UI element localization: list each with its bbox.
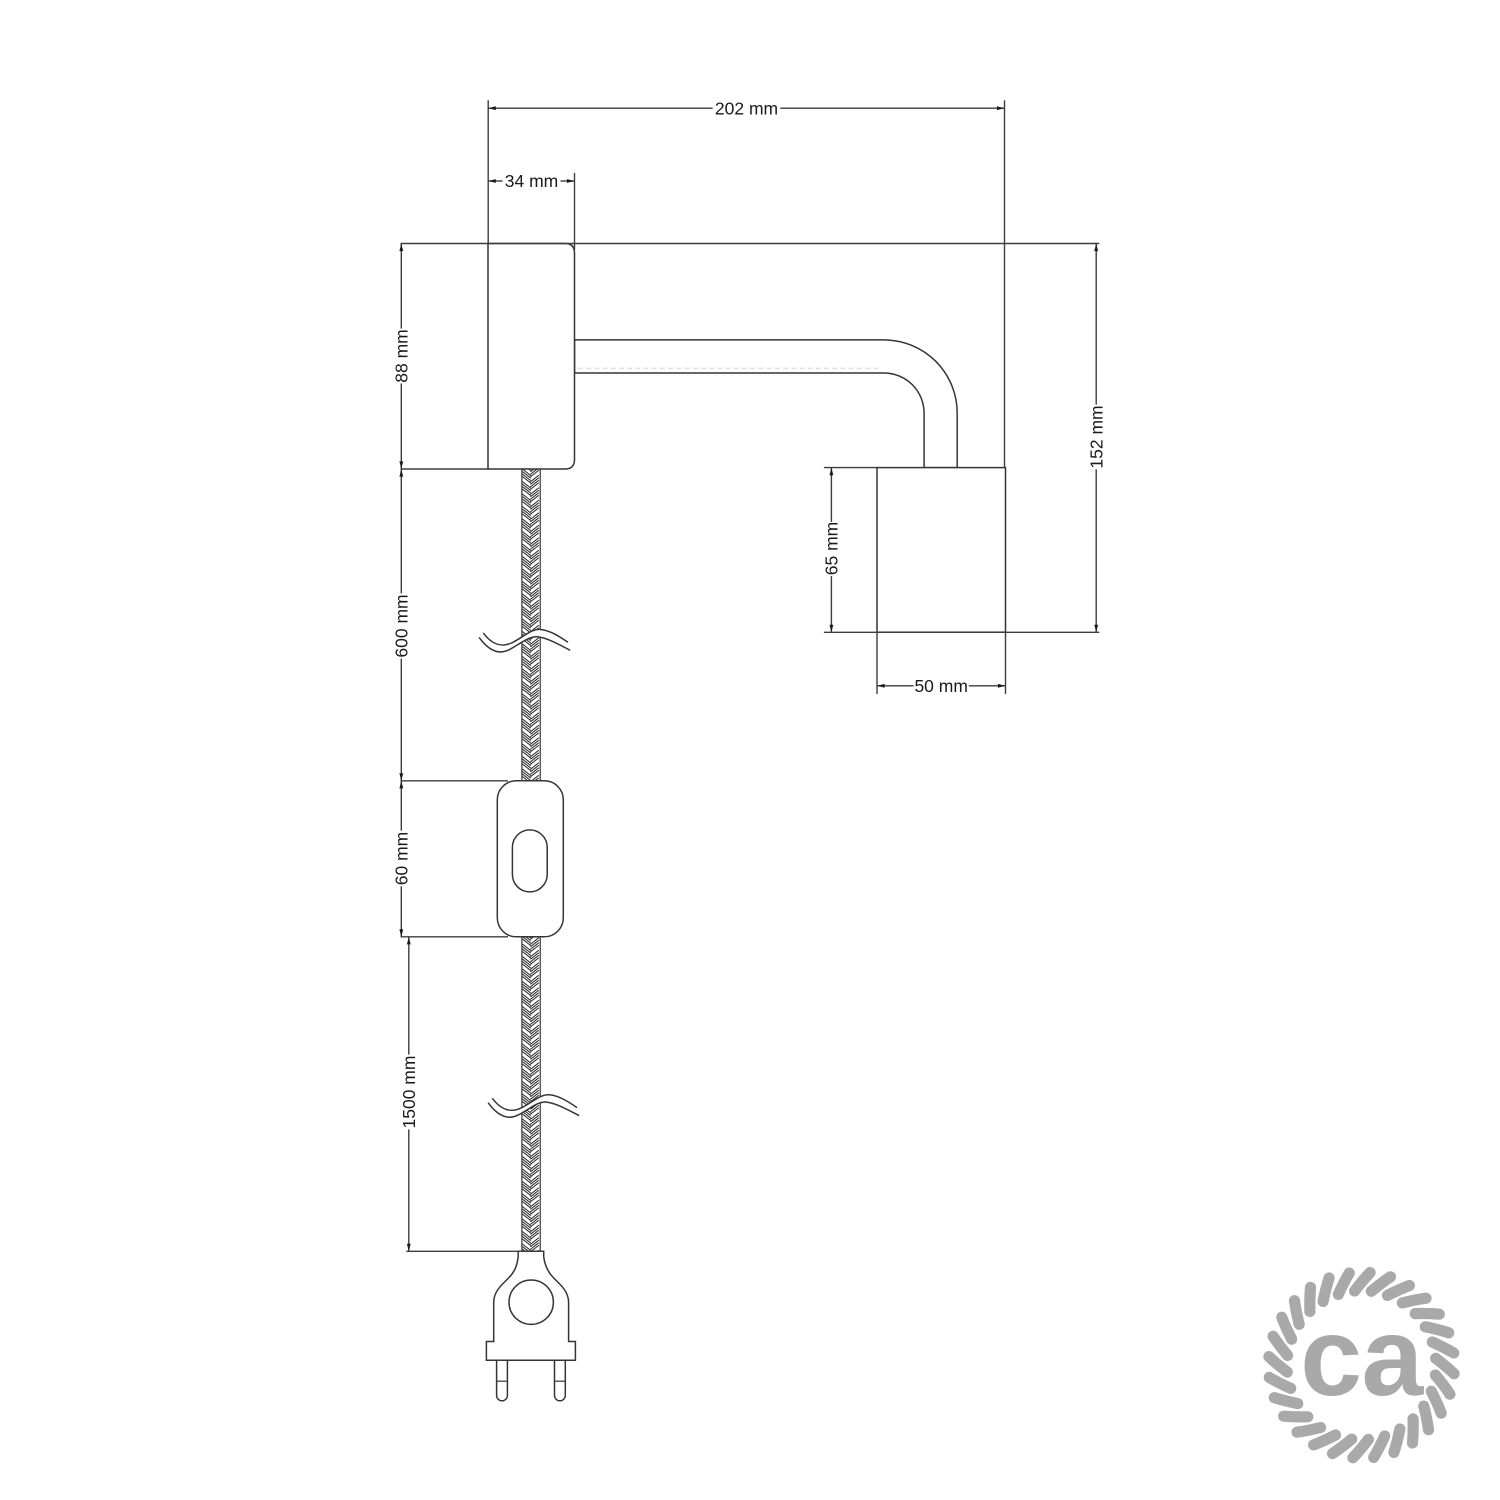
svg-text:202 mm: 202 mm xyxy=(715,98,778,118)
svg-text:50 mm: 50 mm xyxy=(914,676,967,696)
svg-text:34 mm: 34 mm xyxy=(505,171,558,191)
svg-text:600 mm: 600 mm xyxy=(392,594,412,657)
svg-text:88 mm: 88 mm xyxy=(392,329,412,382)
svg-text:65 mm: 65 mm xyxy=(822,522,842,575)
svg-text:60 mm: 60 mm xyxy=(392,832,412,885)
svg-text:152 mm: 152 mm xyxy=(1086,405,1106,468)
svg-text:ca: ca xyxy=(1300,1295,1424,1419)
svg-text:1500 mm: 1500 mm xyxy=(399,1056,419,1129)
